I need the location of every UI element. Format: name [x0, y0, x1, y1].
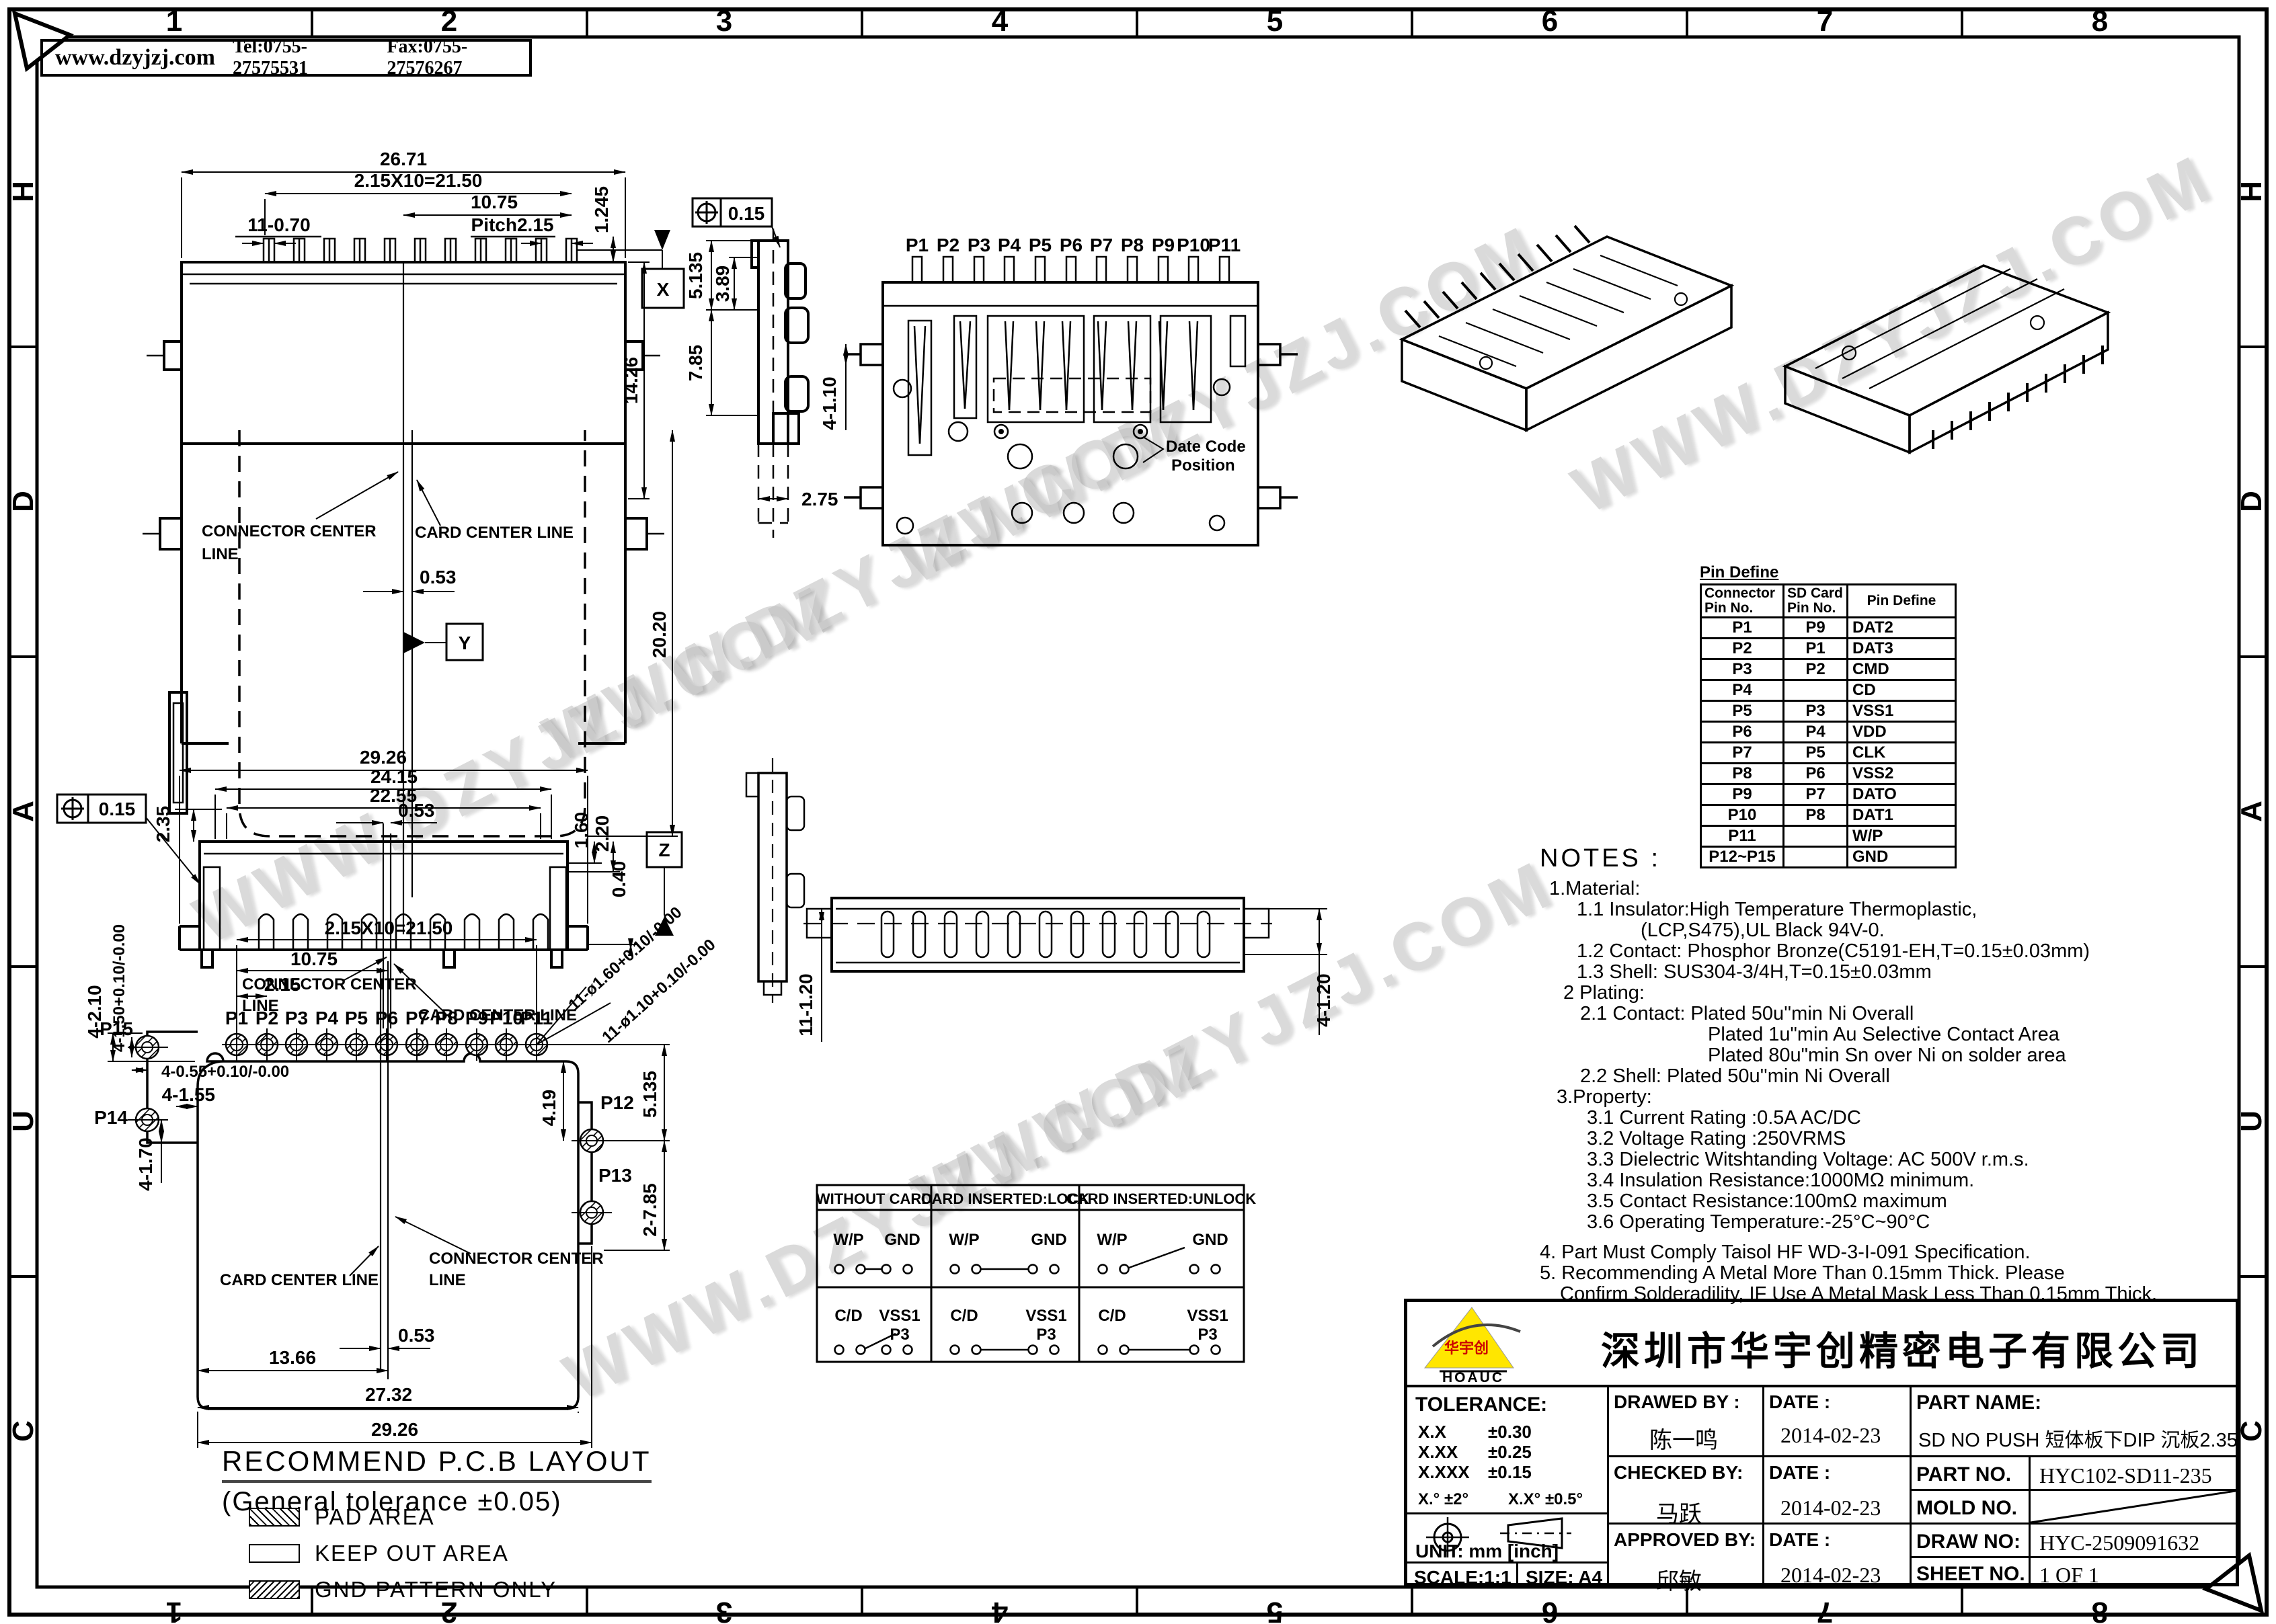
svg-text:P7: P7 — [405, 1008, 428, 1028]
svg-text:4-1.10: 4-1.10 — [819, 376, 840, 430]
top-view-labels: 26.71 2.15X10=21.50 10.75 Pitch2.15 11-0… — [202, 149, 670, 658]
legend-item: GND PATTERN ONLY — [249, 1577, 557, 1602]
bottom-internal-view: P1 P2 P3 P4 P5 P6 P7 P8 P9 P10 P11 Date … — [819, 235, 1298, 545]
svg-text:6: 6 — [1542, 1596, 1558, 1624]
svg-text:Position: Position — [1171, 456, 1235, 475]
svg-text:华宇创: 华宇创 — [1444, 1340, 1489, 1356]
svg-text:P5: P5 — [345, 1008, 368, 1028]
part-name-value: SD NO PUSH 短体板下DIP 沉板2.35 — [1918, 1424, 2238, 1453]
svg-text:0.53: 0.53 — [398, 1325, 435, 1346]
svg-text:5.135: 5.135 — [639, 1071, 660, 1118]
svg-text:0.15: 0.15 — [99, 799, 136, 819]
svg-text:2.75: 2.75 — [801, 489, 838, 510]
svg-text:4: 4 — [991, 1596, 1008, 1624]
svg-text:4: 4 — [992, 5, 1009, 38]
legend-item: PAD AREA — [249, 1504, 557, 1530]
switch-table-headers: WITHOUT CARD CARD INSERTED:LOCK CARD INS… — [816, 1190, 1256, 1207]
svg-text:C/D: C/D — [950, 1307, 978, 1325]
svg-text:26.71: 26.71 — [380, 149, 427, 169]
switch-state-table: WITHOUT CARD CARD INSERTED:LOCK CARD INS… — [816, 1185, 1256, 1362]
svg-text:P3: P3 — [285, 1008, 308, 1028]
svg-text:10.75: 10.75 — [471, 192, 518, 212]
svg-text:Z: Z — [658, 840, 670, 860]
svg-text:X: X — [657, 279, 670, 300]
table-row: P5P3VSS1 — [1701, 701, 1956, 722]
svg-text:LINE: LINE — [202, 545, 239, 563]
isometric-view-right — [1785, 266, 2108, 452]
draw-no-value: HYC-2509091632 — [2039, 1531, 2199, 1555]
svg-text:2.15X10=21.50: 2.15X10=21.50 — [354, 170, 483, 191]
pcb-legend: PAD AREA KEEP OUT AREA GND PATTERN ONLY — [249, 1504, 557, 1613]
fax: Fax:0755-27576267 — [387, 36, 529, 79]
header-contact-box: www.dzyjzj.com Tel:0755-27575531 Fax:075… — [40, 39, 532, 77]
sheet-no-value: 1 OF 1 — [2039, 1563, 2099, 1588]
drawed-by-name: 陈一鸣 — [1649, 1422, 1718, 1455]
svg-text:5: 5 — [1267, 5, 1283, 38]
svg-text:3: 3 — [716, 5, 732, 38]
bottom-strip-view: 11-1.20 4-1.20 — [795, 898, 1334, 1042]
approved-by-name: 邱敏 — [1656, 1563, 1702, 1596]
part-no-value: HYC102-SD11-235 — [2039, 1463, 2212, 1488]
pin-table-title: Pin Define — [1700, 563, 1957, 582]
svg-text:29.26: 29.26 — [371, 1419, 418, 1440]
svg-text:11-0.70: 11-0.70 — [247, 214, 310, 235]
svg-text:2-7.85: 2-7.85 — [639, 1183, 660, 1236]
table-row: P10P8DAT1 — [1701, 805, 1956, 826]
svg-text:P10: P10 — [489, 1008, 523, 1028]
table-row: P12~P15GND — [1701, 847, 1956, 868]
svg-text:1: 1 — [166, 1596, 182, 1624]
svg-text:P5: P5 — [1029, 235, 1052, 255]
svg-text:VSS1: VSS1 — [879, 1307, 920, 1325]
svg-text:CONNECTOR CENTER: CONNECTOR CENTER — [429, 1250, 604, 1268]
svg-text:Y: Y — [459, 633, 471, 653]
svg-text:Pitch2.15: Pitch2.15 — [471, 214, 554, 235]
svg-text:5: 5 — [1267, 1596, 1283, 1624]
svg-text:HOAUC: HOAUC — [1442, 1370, 1504, 1383]
keep-out-swatch — [249, 1544, 300, 1563]
svg-text:7: 7 — [1817, 1596, 1833, 1624]
table-row: P1P9DAT2 — [1701, 618, 1956, 639]
gnd-pattern-swatch — [249, 1580, 300, 1599]
svg-text:11-ø1.10+0.10/-0.00: 11-ø1.10+0.10/-0.00 — [598, 936, 719, 1047]
svg-text:H: H — [7, 181, 40, 202]
svg-text:P3: P3 — [968, 235, 990, 255]
svg-text:VSS1: VSS1 — [1187, 1307, 1228, 1325]
website: www.dzyjzj.com — [55, 45, 215, 71]
svg-text:CARD CENTER LINE: CARD CENTER LINE — [220, 1271, 379, 1289]
pin-define-table: Pin Define ConnectorPin No. SD CardPin N… — [1700, 563, 1957, 868]
svg-text:7: 7 — [1817, 5, 1833, 38]
svg-text:1: 1 — [166, 5, 182, 38]
svg-text:C: C — [7, 1420, 40, 1442]
svg-text:0.53: 0.53 — [398, 800, 435, 821]
svg-text:C: C — [2235, 1420, 2268, 1442]
table-row: P4CD — [1701, 680, 1956, 701]
svg-text:P9: P9 — [1152, 235, 1175, 255]
svg-text:W/P: W/P — [1097, 1231, 1127, 1249]
svg-text:13.66: 13.66 — [269, 1347, 316, 1368]
dim-label: 4-1.20 — [1313, 973, 1334, 1026]
pad-area-swatch — [249, 1508, 300, 1527]
title-block: 华宇创 HOAUC 深圳市华宇创精密电子有限公司 TOLERANCE: X.X … — [1404, 1299, 2239, 1586]
svg-text:D: D — [2235, 491, 2268, 512]
svg-text:P2: P2 — [256, 1008, 278, 1028]
legend-item: KEEP OUT AREA — [249, 1541, 557, 1566]
side-view-labels: 0.15 5.135 3.89 7.85 2.75 — [685, 203, 838, 510]
svg-text:11-ø1.60+0.10/-0.00: 11-ø1.60+0.10/-0.00 — [565, 903, 685, 1014]
svg-text:CONNECTOR CENTER: CONNECTOR CENTER — [202, 522, 377, 540]
svg-text:P12: P12 — [600, 1092, 634, 1113]
table-row: P2P1DAT3 — [1701, 639, 1956, 659]
svg-text:2: 2 — [441, 5, 457, 38]
table-row: P3P2CMD — [1701, 659, 1956, 680]
svg-text:8: 8 — [2092, 1596, 2108, 1624]
svg-text:P13: P13 — [598, 1165, 632, 1186]
size-label: SIZE: A4 — [1526, 1567, 1602, 1588]
svg-text:CARD INSERTED:LOCK: CARD INSERTED:LOCK — [921, 1190, 1090, 1207]
svg-text:4-1.55: 4-1.55 — [162, 1084, 215, 1105]
svg-text:5.135: 5.135 — [685, 252, 706, 299]
svg-text:4-1.50+0.10/-0.00: 4-1.50+0.10/-0.00 — [110, 924, 128, 1052]
svg-text:P8: P8 — [1121, 235, 1144, 255]
svg-text:6: 6 — [1542, 5, 1558, 38]
svg-text:P2: P2 — [937, 235, 959, 255]
svg-text:14.26: 14.26 — [621, 357, 641, 404]
svg-text:P3: P3 — [1036, 1326, 1056, 1344]
svg-text:P4: P4 — [315, 1008, 339, 1028]
notes-block: NOTES : 1.Material: 1.1 Insulator:High T… — [1540, 848, 2148, 1305]
svg-text:WITHOUT CARD: WITHOUT CARD — [816, 1190, 932, 1207]
svg-text:8: 8 — [2092, 5, 2108, 38]
svg-text:27.32: 27.32 — [365, 1384, 412, 1405]
svg-text:4.19: 4.19 — [539, 1090, 559, 1127]
svg-text:0.15: 0.15 — [728, 203, 765, 224]
svg-text:Date Code: Date Code — [1166, 438, 1246, 456]
svg-text:A: A — [7, 801, 40, 822]
svg-text:3: 3 — [716, 1596, 732, 1624]
svg-text:4-1.70: 4-1.70 — [135, 1137, 156, 1190]
svg-text:2.20: 2.20 — [592, 815, 613, 852]
drawed-date: 2014-02-23 — [1780, 1423, 1881, 1448]
svg-text:2.35: 2.35 — [153, 806, 173, 843]
svg-text:VSS1: VSS1 — [1025, 1307, 1066, 1325]
svg-text:CARD CENTER LINE: CARD CENTER LINE — [415, 524, 574, 542]
svg-text:P8: P8 — [435, 1008, 458, 1028]
svg-text:0.40: 0.40 — [609, 861, 629, 898]
svg-text:P6: P6 — [1060, 235, 1083, 255]
table-row: P11W/P — [1701, 826, 1956, 847]
scale-label: SCALE:1:1 — [1414, 1567, 1512, 1588]
svg-text:P4: P4 — [998, 235, 1021, 255]
svg-text:2.15: 2.15 — [264, 974, 301, 995]
svg-text:P6: P6 — [375, 1008, 398, 1028]
svg-text:U: U — [2235, 1110, 2268, 1132]
svg-text:P14: P14 — [94, 1107, 128, 1128]
svg-text:P10: P10 — [1177, 235, 1210, 255]
svg-text:4-2.10: 4-2.10 — [84, 985, 105, 1038]
svg-text:29.26: 29.26 — [360, 747, 407, 768]
svg-text:D: D — [7, 491, 40, 512]
svg-text:W/P: W/P — [949, 1231, 979, 1249]
drawing-sheet: { "page": { "website": "www.dzyjzj.com",… — [0, 0, 2276, 1624]
svg-text:P11: P11 — [520, 1008, 553, 1028]
table-row: P9P7DATO — [1701, 784, 1956, 805]
telephone: Tel:0755-27575531 — [233, 36, 370, 79]
tolerance-title: TOLERANCE: — [1415, 1393, 1547, 1416]
checked-by-name: 马跃 — [1656, 1496, 1702, 1529]
svg-text:4-0.55+0.10/-0.00: 4-0.55+0.10/-0.00 — [161, 1063, 289, 1081]
company-logo: 华宇创 HOAUC — [1419, 1306, 1567, 1383]
svg-text:24.15: 24.15 — [370, 766, 418, 787]
table-row: P8P6VSS2 — [1701, 764, 1956, 784]
svg-text:GND: GND — [884, 1231, 920, 1249]
svg-text:C/D: C/D — [834, 1307, 862, 1325]
svg-text:7.85: 7.85 — [685, 345, 706, 382]
svg-text:0.53: 0.53 — [420, 567, 457, 587]
svg-text:A: A — [2235, 801, 2268, 822]
pcb-title: RECOMMEND P.C.B LAYOUT — [222, 1445, 652, 1483]
side-view-upper: 0.15 5.135 3.89 7.85 2.75 — [685, 198, 838, 538]
svg-text:GND: GND — [1192, 1231, 1228, 1249]
svg-text:W/P: W/P — [833, 1231, 863, 1249]
mold-no-empty — [2031, 1491, 2236, 1522]
svg-text:GND: GND — [1031, 1231, 1066, 1249]
top-view-pins — [264, 239, 577, 262]
svg-text:P9: P9 — [465, 1008, 488, 1028]
svg-text:20.20: 20.20 — [649, 611, 670, 658]
svg-text:3.89: 3.89 — [712, 266, 733, 302]
svg-text:P11: P11 — [1208, 235, 1241, 255]
company-name: 深圳市华宇创精密电子有限公司 — [1575, 1319, 2229, 1376]
table-row: P6P4VDD — [1701, 722, 1956, 743]
svg-text:1.60: 1.60 — [571, 812, 592, 849]
approved-date: 2014-02-23 — [1780, 1563, 1881, 1588]
svg-text:10.75: 10.75 — [290, 948, 338, 969]
side-view-lower — [746, 758, 804, 1003]
svg-text:H: H — [2235, 181, 2268, 202]
svg-text:P1: P1 — [906, 235, 929, 255]
bottom-view-pins — [912, 257, 1229, 282]
svg-text:CARD INSERTED:UNLOCK: CARD INSERTED:UNLOCK — [1066, 1190, 1256, 1207]
svg-text:P3: P3 — [1198, 1326, 1217, 1344]
svg-text:C/D: C/D — [1098, 1307, 1126, 1325]
svg-text:2.15X10=21.50: 2.15X10=21.50 — [325, 918, 453, 938]
dim-label: 11-1.20 — [795, 973, 816, 1036]
svg-text:P1: P1 — [225, 1008, 248, 1028]
unit-label: UNIT: mm [inch] — [1415, 1541, 1559, 1562]
checked-date: 2014-02-23 — [1780, 1496, 1881, 1520]
svg-text:LINE: LINE — [429, 1271, 466, 1289]
pcb-holes — [222, 1028, 551, 1061]
table-row: P7P5CLK — [1701, 743, 1956, 764]
svg-text:U: U — [7, 1110, 40, 1132]
svg-text:P7: P7 — [1090, 235, 1113, 255]
svg-text:1.245: 1.245 — [591, 186, 612, 233]
